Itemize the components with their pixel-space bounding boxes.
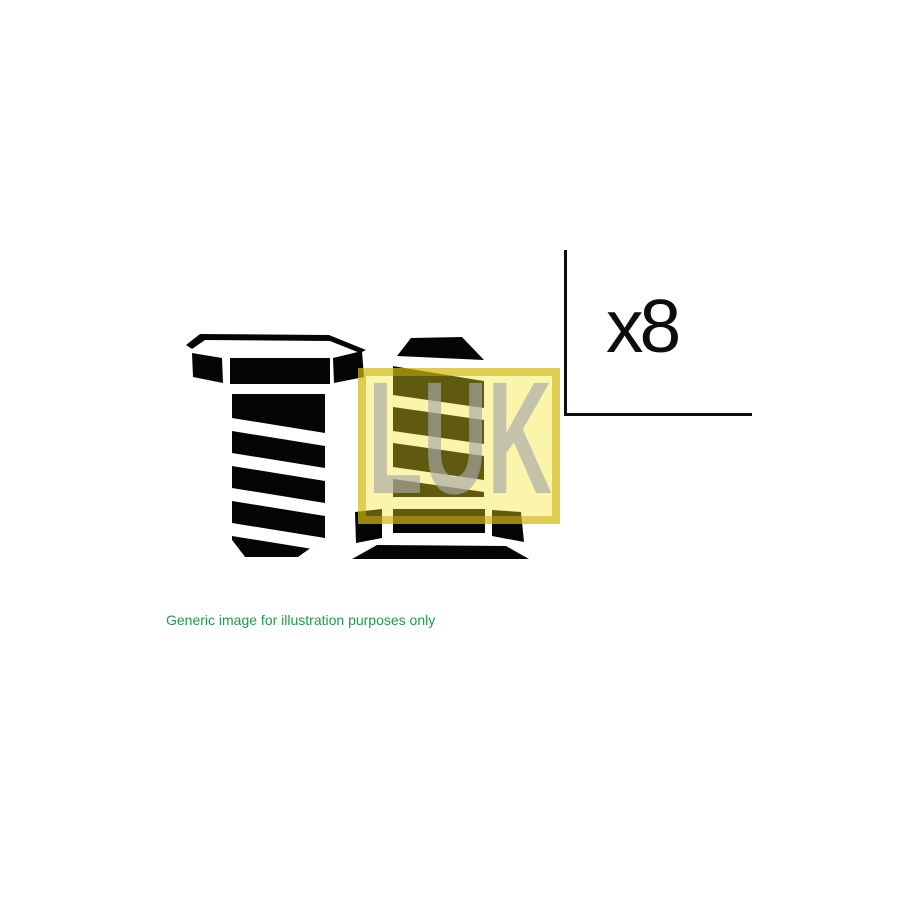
left-bolt-head-top-rim <box>186 334 366 353</box>
quantity-label: x8 <box>606 289 677 364</box>
right-bolt-head-bottom-face <box>352 545 529 559</box>
left-bolt-shaft <box>232 394 325 557</box>
product-image-canvas: LUK x8 Generic image for illustration pu… <box>0 0 900 900</box>
left-bolt-head-center-facet <box>230 358 330 384</box>
left-bolt-head-left-facet <box>192 353 223 383</box>
hex-head-bolt-side-view-icon <box>186 334 366 557</box>
brand-logo-text: LUK <box>368 358 552 518</box>
bracket-vertical-line <box>564 250 567 415</box>
brand-logo-watermark: LUK <box>358 368 560 524</box>
disclaimer-text: Generic image for illustration purposes … <box>166 612 435 629</box>
bracket-horizontal-line <box>564 413 752 416</box>
